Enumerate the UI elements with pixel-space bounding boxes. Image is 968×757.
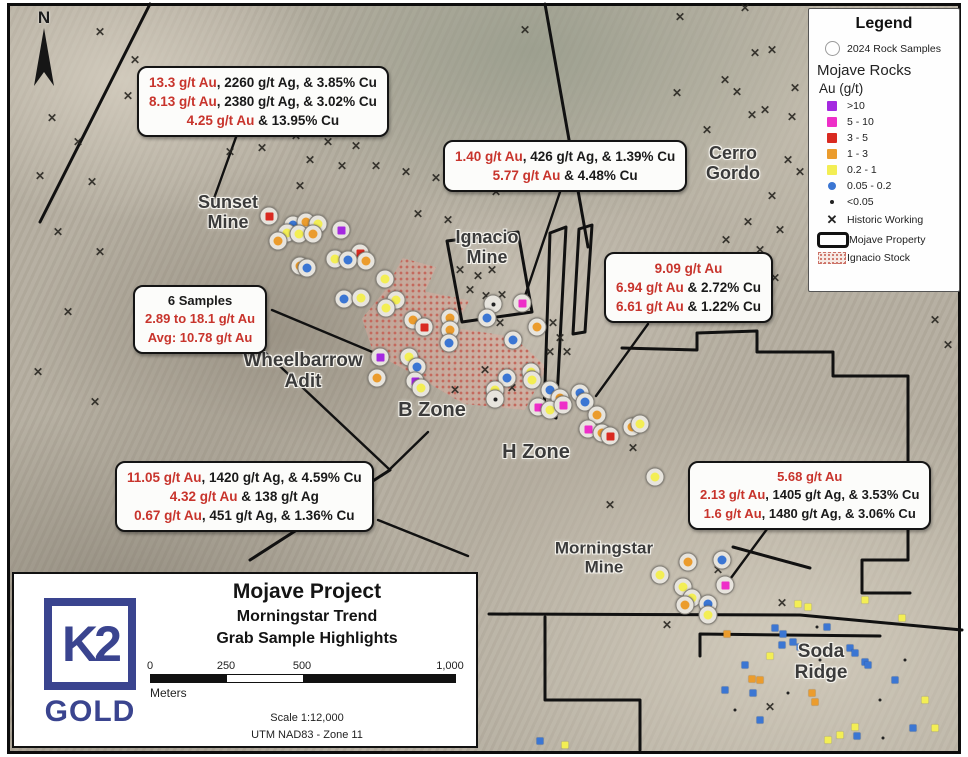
title-box: K2 GOLD Mojave Project Morningstar Trend… [12,572,478,748]
class-label: 0.2 - 1 [847,164,877,176]
scale-tick: 1,000 [436,660,464,672]
logo-k2-text: K2 [62,619,118,669]
legend-property-label: Mojave Property [849,234,925,246]
class-label: 0.05 - 0.2 [847,180,891,192]
legend-section-title: Mojave Rocks [817,62,951,79]
rock-sample-icon [825,41,840,56]
class-swatch-5-10 [827,117,837,127]
legend-title: Legend [817,15,951,33]
annotation-box-hzone-east: 9.09 g/t Au6.94 g/t Au & 2.72% Cu6.61 g/… [604,252,773,323]
datum-text: UTM NAD83 - Zone 11 [144,727,470,744]
class-label: 3 - 5 [847,132,868,144]
legend: Legend 2024 Rock Samples Mojave Rocks Au… [808,8,960,292]
class-swatch-005-02 [828,182,836,190]
annotation-box-6-samples: 6 Samples2.89 to 18.1 g/t AuAvg: 10.78 g… [133,285,267,354]
logo-gold-text: GOLD [34,695,146,729]
class-swatch-1-3 [827,149,837,159]
map-title: Mojave Project [144,580,470,604]
historic-working-icon: ✕ [827,212,838,228]
scale-ratio: Scale 1:12,000 [144,710,470,727]
mojave-property-icon [817,232,849,248]
class-swatch-3-5 [827,133,837,143]
legend-au-title: Au (g/t) [819,81,951,96]
legend-historic-label: Historic Working [847,214,923,226]
scale-units: Meters [150,686,456,700]
scale-bar-graphic [150,674,456,683]
scale-tick: 250 [217,660,235,672]
map-subtitle-2: Grab Sample Highlights [144,630,470,648]
class-swatch-gt10 [827,101,837,111]
class-label: >10 [847,100,865,112]
scale-tick: 0 [147,660,153,672]
annotation-box-bzone: 11.05 g/t Au, 1420 g/t Ag, & 4.59% Cu4.3… [115,461,374,532]
annotation-box-morningstar: 5.68 g/t Au2.13 g/t Au, 1405 g/t Ag, & 3… [688,461,931,530]
class-swatch-lt005 [830,200,834,204]
class-label: <0.05 [847,196,874,208]
class-swatch-02-1 [827,165,837,175]
legend-rock-samples-label: 2024 Rock Samples [847,43,941,55]
class-label: 1 - 3 [847,148,868,160]
legend-stock-label: Ignacio Stock [847,252,910,264]
k2-logo-mark: K2 [44,598,136,690]
map-subtitle-1: Morningstar Trend [144,608,470,626]
annotation-box-sunset: 13.3 g/t Au, 2260 g/t Ag, & 3.85% Cu8.13… [137,66,389,137]
scale-bar: 0 250 500 1,000 Meters [150,660,456,700]
annotation-box-ignacio: 1.40 g/t Au, 426 g/t Ag, & 1.39% Cu5.77 … [443,140,687,192]
ignacio-stock-icon [818,252,846,264]
k2-gold-logo: K2 GOLD [34,598,146,729]
scale-tick: 500 [293,660,311,672]
class-label: 5 - 10 [847,116,874,128]
